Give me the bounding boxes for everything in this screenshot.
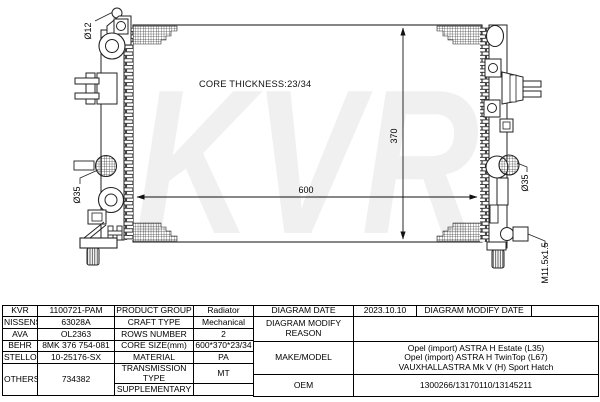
table-row: MAKE/MODEL Opel (import) ASTRA H Estate …: [254, 342, 599, 375]
spec-label: PRODUCT GROUP: [115, 306, 194, 317]
modify-date-value: [532, 306, 599, 317]
table-row: BEHR 8MK 376 754-081 CORE SIZE(mm) 600*3…: [3, 341, 254, 352]
spec-value: Radiator: [194, 306, 254, 317]
brand-name: STELLOX: [3, 352, 38, 364]
diagram-date-value: 2023.10.10: [354, 306, 417, 317]
right-connector: [502, 72, 541, 104]
brand-name: OTHERS: [3, 364, 38, 396]
brand-code: 1100721-PAM: [38, 306, 115, 317]
table-row: OTHERS 734382 TRANSMISSION TYPE MT: [3, 364, 254, 384]
spec-value: Mechanical: [194, 317, 254, 329]
spec-value: PA: [194, 352, 254, 364]
table-row: DIAGRAM MODIFY REASON: [254, 317, 599, 342]
spec-label: ROWS NUMBER: [115, 329, 194, 341]
core-thickness-label: CORE THICKNESS:23/34: [199, 79, 311, 89]
make-model-value: Opel (import) ASTRA H Estate (L35) Opel …: [354, 342, 599, 375]
modify-reason-value: [354, 317, 599, 342]
brand-code: 63028A: [38, 317, 115, 329]
right-tank-gasket-teeth: [480, 26, 489, 242]
table-row: DIAGRAM DATE 2023.10.10 DIAGRAM MODIFY D…: [254, 306, 599, 317]
modify-date-label: DIAGRAM MODIFY DATE: [417, 306, 532, 317]
inlet-diameter-label: Ø12: [83, 22, 93, 39]
spec-label: CORE SIZE(mm): [115, 341, 194, 352]
spec-value: 2: [194, 329, 254, 341]
brand-code: OL2363: [38, 329, 115, 341]
left-ring-port: [99, 188, 124, 213]
right-tank: [480, 25, 545, 268]
spec-label: MATERIAL: [115, 352, 194, 364]
right-upper-fitting: [485, 59, 501, 77]
oem-label: OEM: [254, 375, 354, 397]
spec-label: TRANSMISSION TYPE: [115, 364, 194, 384]
filler-neck: [487, 26, 504, 47]
table-row: KVR 1100721-PAM PRODUCT GROUP Radiator: [3, 306, 254, 317]
left-connector: [75, 73, 117, 104]
brand-name: BEHR: [3, 341, 38, 352]
diagram-date-label: DIAGRAM DATE: [254, 306, 354, 317]
left-port-diameter-label: Ø35: [72, 186, 82, 203]
table-row: NISSENS 63028A CRAFT TYPE Mechanical: [3, 317, 254, 329]
diagram-info-table: DIAGRAM DATE 2023.10.10 DIAGRAM MODIFY D…: [253, 305, 599, 397]
brand-code: 734382: [38, 364, 115, 396]
dimension-height-value: 370: [389, 128, 399, 143]
oem-value: 1300266/13170110/13145211: [354, 375, 599, 397]
inlet-leader-line: [95, 12, 113, 21]
brand-code: 10-25176-SX: [38, 352, 115, 364]
table-row: STELLOX 10-25176-SX MATERIAL PA: [3, 352, 254, 364]
make-model-line: VAUXHALLASTRA Mk V (H) Sport Hatch: [355, 363, 597, 373]
cross-reference-table: KVR 1100721-PAM PRODUCT GROUP Radiator N…: [2, 305, 254, 396]
right-port-diameter-label: Ø35: [520, 174, 530, 191]
dimension-width-value: 600: [298, 185, 313, 195]
left-port-leader-line: [80, 170, 98, 184]
brand-code: 8MK 376 754-081: [38, 341, 115, 352]
drain-thread-label: M11.5x1.5: [540, 242, 550, 283]
radiator-diagram: KVR CORE THICKNESS:23/34 600 370: [0, 0, 600, 302]
spec-label: SUPPLEMENTARY: [115, 384, 194, 396]
brand-name: NISSENS: [3, 317, 38, 329]
spec-value: 600*370*23/34: [194, 341, 254, 352]
spec-value: MT: [194, 364, 254, 384]
modify-reason-label: DIAGRAM MODIFY REASON: [254, 317, 354, 342]
left-tank: [74, 8, 133, 265]
table-row: AVA OL2363 ROWS NUMBER 2: [3, 329, 254, 341]
brand-name: AVA: [3, 329, 38, 341]
brand-name: KVR: [3, 306, 38, 317]
drain-bolt: [492, 250, 504, 268]
left-tank-gasket-teeth: [124, 28, 133, 240]
radiator-spec-sheet: { "diagram": { "labels": { "watermark": …: [0, 0, 600, 402]
left-mounting-bolt: [87, 248, 99, 265]
table-row: OEM 1300266/13170110/13145211: [254, 375, 599, 397]
radiator-drawing-svg: KVR CORE THICKNESS:23/34 600 370: [0, 0, 600, 302]
make-model-label: MAKE/MODEL: [254, 342, 354, 375]
spec-value: [194, 384, 254, 396]
spec-label: CRAFT TYPE: [115, 317, 194, 329]
